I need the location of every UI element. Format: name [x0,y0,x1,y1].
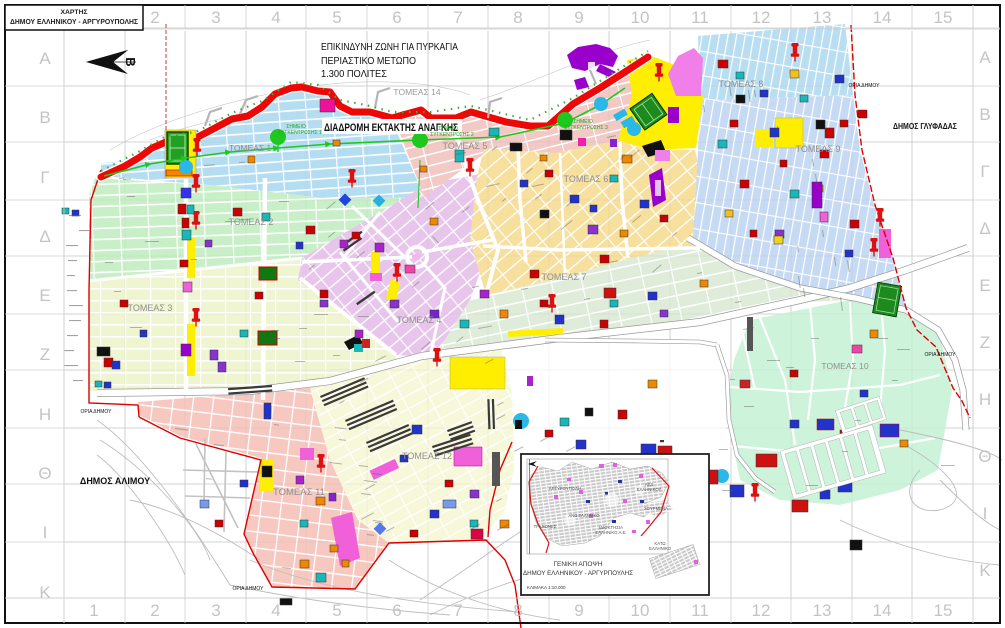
svg-text:4: 4 [271,8,280,27]
svg-text:ΔΗΜΟΣ ΑΛΙΜΟΥ: ΔΗΜΟΣ ΑΛΙΜΟΥ [80,476,150,486]
svg-text:ΚΛΙΜΑΚΑ 1:10.000: ΚΛΙΜΑΚΑ 1:10.000 [527,585,566,590]
svg-text:Β: Β [979,105,990,124]
svg-text:Δ: Δ [39,227,50,246]
svg-text:ΤΟΜΕΑΣ 8: ΤΟΜΕΑΣ 8 [719,79,764,89]
svg-text:Θ: Θ [978,447,991,466]
svg-text:14: 14 [873,8,892,27]
svg-text:15: 15 [934,8,953,27]
svg-text:ΔΗΜΟΥ ΕΛΛΗΝΙΚΟΥ - ΑΡΓΥΡΟΥΠΟΛΗΣ: ΔΗΜΟΥ ΕΛΛΗΝΙΚΟΥ - ΑΡΓΥΡΟΥΠΟΛΗΣ [10,19,138,26]
svg-text:ΔΗΜΟΥ ΕΛΛΗΝΙΚΟΥ - ΑΡΓΥΡΠΟΥΛΗΣ: ΔΗΜΟΥ ΕΛΛΗΝΙΚΟΥ - ΑΡΓΥΡΠΟΥΛΗΣ [523,570,633,577]
svg-text:ΤΟΜΕΑΣ 9: ΤΟΜΕΑΣ 9 [796,144,841,154]
svg-text:ΣΥΓΚΕΝΤΡΩΣΗΣ 1: ΣΥΓΚΕΝΤΡΩΣΗΣ 1 [278,130,322,136]
svg-text:ΤΟΜΕΑΣ 1: ΤΟΜΕΑΣ 1 [229,143,272,153]
svg-text:2: 2 [150,601,159,620]
svg-text:7: 7 [453,601,462,620]
svg-text:ΤΟΜΕΑΣ 3: ΤΟΜΕΑΣ 3 [128,303,173,313]
svg-text:ΕΠΙΚΙΝΔΥΝΗ ΖΩΝΗ ΓΙΑ ΠΥΡΚΑΓΙΑ: ΕΠΙΚΙΝΔΥΝΗ ΖΩΝΗ ΓΙΑ ΠΥΡΚΑΓΙΑ [321,42,458,53]
svg-text:ΑΝΩ ΕΛΛΗΝΙΚΟ: ΑΝΩ ΕΛΛΗΝΙΚΟ [569,513,600,518]
svg-text:12: 12 [752,8,771,27]
svg-text:Α: Α [39,49,51,68]
svg-text:1.300 ΠΟΛΙΤΕΣ: 1.300 ΠΟΛΙΤΕΣ [321,69,387,80]
svg-text:14: 14 [873,601,892,620]
svg-text:ΤΟΜΕΑΣ 5: ΤΟΜΕΑΣ 5 [443,141,488,151]
svg-text:12: 12 [752,601,771,620]
svg-text:ΟΡΙΑ ΔΗΜΟΥ: ΟΡΙΑ ΔΗΜΟΥ [925,352,957,358]
svg-text:ΤΟΜΕΑΣ 10: ΤΟΜΕΑΣ 10 [821,361,868,371]
svg-text:8: 8 [513,601,522,620]
svg-text:15: 15 [934,601,953,620]
svg-text:Η: Η [979,390,991,409]
svg-text:9: 9 [574,8,583,27]
svg-text:6: 6 [392,601,401,620]
svg-text:ΑΡΓΥΡΟΥΠΟΛΗ: ΑΡΓΥΡΟΥΠΟΛΗ [549,486,581,491]
svg-text:Ι: Ι [983,504,988,523]
svg-text:Β: Β [123,57,138,66]
svg-text:9: 9 [574,601,583,620]
svg-text:Α: Α [979,48,991,67]
svg-text:Ε: Ε [39,286,50,305]
svg-text:1: 1 [89,601,98,620]
svg-text:3: 3 [211,8,220,27]
svg-text:ΤΟΜΕΑΣ 12: ΤΟΜΕΑΣ 12 [402,451,452,461]
svg-text:Ε: Ε [979,276,990,295]
svg-text:ΓΕΝΙΚΗ ΑΠΟΨΗ: ΓΕΝΙΚΗ ΑΠΟΨΗ [553,561,602,568]
svg-text:8: 8 [513,8,522,27]
svg-text:Δ: Δ [979,219,990,238]
svg-text:ΤΟΜΕΑΣ 4: ΤΟΜΕΑΣ 4 [397,315,442,325]
svg-text:ΟΡΙΑ ΔΗΜΟΥ: ΟΡΙΑ ΔΗΜΟΥ [81,409,113,415]
svg-text:13: 13 [813,8,832,27]
svg-text:ΤΟΜΕΑΣ 6: ΤΟΜΕΑΣ 6 [564,174,609,184]
svg-text:ΣΥΓΚΕΝΤΡΩΣΗΣ 3: ΣΥΓΚΕΝΤΡΩΣΗΣ 3 [564,125,608,131]
svg-text:Θ: Θ [38,464,51,483]
svg-text:Β: Β [39,108,50,127]
svg-text:7: 7 [453,8,462,27]
svg-text:ΤΟΜΕΑΣ 11: ΤΟΜΕΑΣ 11 [273,487,325,498]
svg-text:5: 5 [332,601,341,620]
svg-text:ΕΛΛΗΝΙΚΟΥ: ΕΛΛΗΝΙΚΟΥ [637,487,662,492]
svg-text:Ζ: Ζ [40,345,50,364]
svg-text:ΤΟΜΕΑΣ 7: ΤΟΜΕΑΣ 7 [542,272,587,282]
svg-text:10: 10 [631,8,650,27]
svg-text:ΕΛΛΗΝΙΚΟ Α.Ε.: ΕΛΛΗΝΙΚΟ Α.Ε. [595,530,626,535]
svg-text:ΟΡΙΑ ΔΗΜΟΥ: ΟΡΙΑ ΔΗΜΟΥ [233,586,265,592]
svg-text:Ι: Ι [43,523,48,542]
svg-text:Γ: Γ [980,162,989,181]
svg-text:ΟΡΙΑ ΔΗΜΟΥ: ΟΡΙΑ ΔΗΜΟΥ [849,83,881,89]
svg-text:4: 4 [271,601,280,620]
svg-text:6: 6 [392,8,401,27]
svg-text:ΤΟΜΕΑΣ 2: ΤΟΜΕΑΣ 2 [229,217,274,227]
svg-text:10: 10 [631,601,650,620]
svg-text:ΔΗΜΟΣ ΓΛΥΦΑΔΑΣ: ΔΗΜΟΣ ΓΛΥΦΑΔΑΣ [893,121,957,131]
svg-text:ΧΑΡΤΗΣ: ΧΑΡΤΗΣ [60,9,87,16]
svg-text:Γ: Γ [40,168,49,187]
svg-text:5: 5 [332,8,341,27]
svg-text:ΣΟΥΡΜΕΝΑ: ΣΟΥΡΜΕΝΑ [644,506,668,511]
svg-text:Κ: Κ [979,561,991,580]
svg-text:Ζ: Ζ [980,333,990,352]
svg-text:ΣΥΓΚΕΝΤΡΩΣΗΣ 2: ΣΥΓΚΕΝΤΡΩΣΗΣ 2 [430,132,474,138]
svg-text:11: 11 [691,8,709,27]
svg-text:ΤΟΜΕΑΣ 14: ΤΟΜΕΑΣ 14 [393,87,440,97]
svg-text:Κ: Κ [39,583,51,602]
svg-text:2: 2 [150,8,159,27]
svg-text:13: 13 [813,601,832,620]
svg-text:Η: Η [39,405,51,424]
svg-text:ΤΡΑΧΩΝΕΣ: ΤΡΑΧΩΝΕΣ [534,524,557,529]
svg-text:11: 11 [691,601,709,620]
svg-text:3: 3 [211,601,220,620]
svg-text:ΠΕΡΙΑΣΤΙΚΟ ΜΕΤΩΠΟ: ΠΕΡΙΑΣΤΙΚΟ ΜΕΤΩΠΟ [321,56,416,67]
svg-text:ΕΛΛΗΝΙΚΟ: ΕΛΛΗΝΙΚΟ [649,546,672,551]
